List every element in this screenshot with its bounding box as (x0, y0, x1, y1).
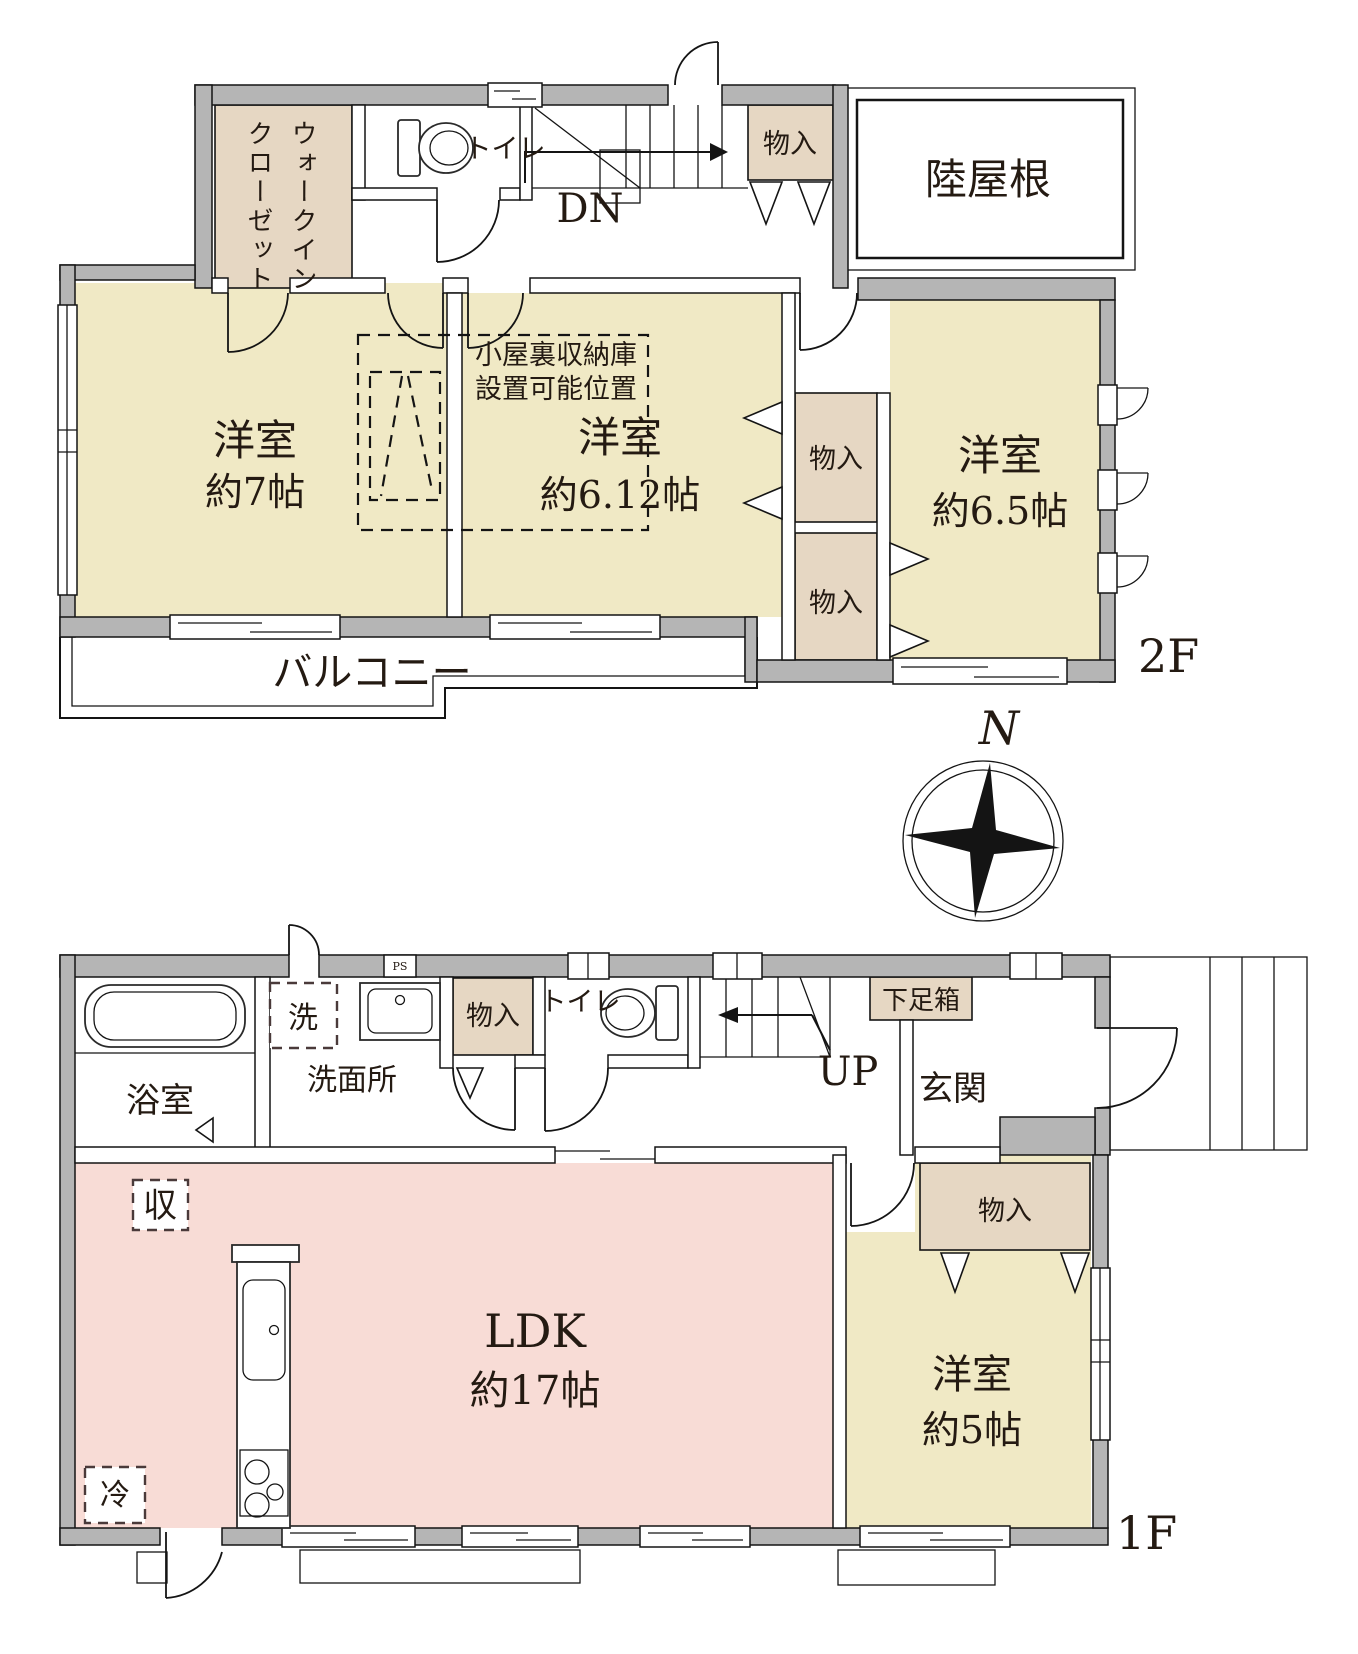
label-pipe-space: PS (393, 960, 408, 973)
label-room5-name: 洋室 (932, 1352, 1012, 1398)
entrance-porch (1110, 957, 1307, 1150)
floorplan-page: ウォークイン クローゼット トイレ DN 物入 陸屋根 洋室 約7帖 洋室 約6… (0, 0, 1358, 1654)
casement-window-3 (1098, 553, 1148, 593)
label-room7-size: 約7帖 (205, 470, 305, 514)
floor-1f: 浴室 洗 PS 洗面所 物入 トイレ UP 下足箱 玄関 収 冷 LDK 約17… (60, 925, 1307, 1598)
bathtub (75, 985, 255, 1053)
label-attic-line1: 小屋裏収納庫 (475, 340, 637, 371)
label-toilet-2f: トイレ (465, 134, 546, 165)
compass-star (905, 763, 1060, 918)
label-attic-line2: 設置可能位置 (475, 374, 637, 405)
label-storage-east: 物入 (978, 1196, 1032, 1227)
floor-2f: ウォークイン クローゼット トイレ DN 物入 陸屋根 洋室 約7帖 洋室 約6… (58, 42, 1199, 718)
casement-window-1 (1098, 385, 1148, 425)
label-shoe-box: 下足箱 (882, 986, 960, 1016)
casement-window-2 (1098, 470, 1148, 510)
bath-folding-door (196, 1118, 213, 1142)
label-up: UP (818, 1049, 879, 1095)
compass-north-label: N (978, 701, 1021, 755)
room-65jo-fill (890, 300, 1100, 660)
stairs-1f (700, 977, 830, 1057)
terraces (137, 1550, 995, 1585)
label-room612-name: 洋室 (578, 413, 662, 462)
label-washer: 洗 (288, 1001, 318, 1036)
label-fridge: 冷 (100, 1478, 130, 1513)
label-room5-size: 約5帖 (922, 1408, 1022, 1452)
compass: N (903, 701, 1063, 921)
label-storage-1f-top: 物入 (466, 1001, 520, 1032)
walkin-closet-fill (215, 105, 352, 288)
label-balcony: バルコニー (272, 650, 471, 696)
label-1f-tag: 1F (1116, 1506, 1177, 1560)
label-storage-note: 収 (143, 1186, 177, 1226)
label-dn: DN (556, 186, 623, 232)
label-storage-2f-top: 物入 (763, 129, 817, 160)
floorplan-svg: ウォークイン クローゼット トイレ DN 物入 陸屋根 洋室 約7帖 洋室 約6… (0, 0, 1358, 1654)
label-room612-size: 約6.12帖 (540, 473, 701, 517)
label-flat-roof: 陸屋根 (925, 155, 1051, 204)
label-room65-name: 洋室 (958, 431, 1042, 480)
stairs-up-arrow (718, 1007, 738, 1023)
label-bathroom: 浴室 (126, 1081, 194, 1121)
label-wic-line2: クローゼット (243, 120, 273, 294)
label-room65-size: 約6.5帖 (932, 489, 1068, 533)
label-toilet-1f: トイレ (540, 987, 621, 1018)
kitchen-island (232, 1245, 299, 1528)
label-wic-line1: ウォークイン (287, 120, 317, 294)
label-entrance: 玄関 (919, 1069, 987, 1109)
label-ldk-name: LDK (484, 1304, 587, 1358)
label-washroom: 洗面所 (307, 1063, 397, 1098)
label-2f-tag: 2F (1138, 629, 1199, 683)
label-storage-mid-lower: 物入 (809, 588, 863, 619)
label-ldk-size: 約17帖 (470, 1368, 601, 1414)
stairs-down-arrow (710, 143, 728, 161)
label-room7-name: 洋室 (213, 416, 297, 465)
label-storage-mid-upper: 物入 (809, 444, 863, 475)
toilet-fixture-2f (398, 120, 473, 176)
